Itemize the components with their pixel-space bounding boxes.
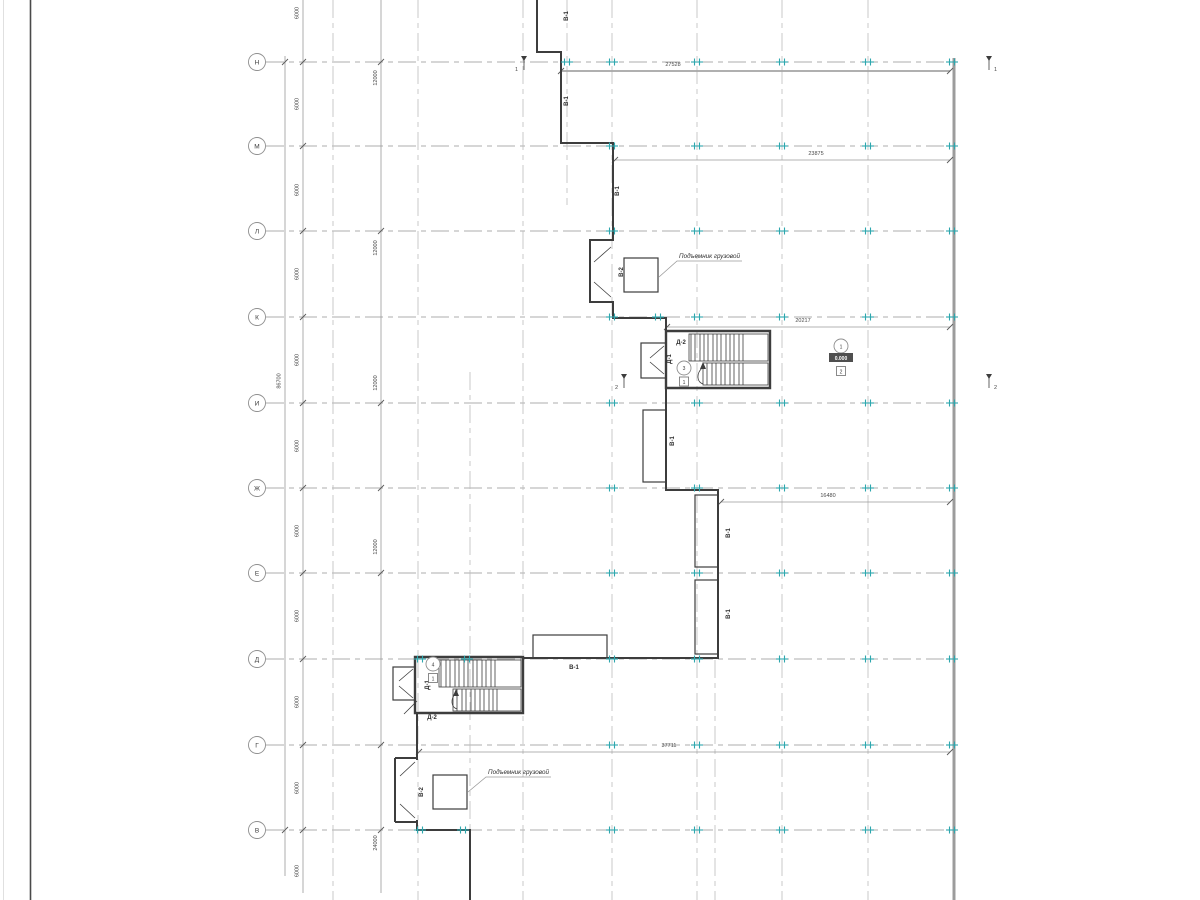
axis-row-label: В <box>255 828 259 835</box>
axis-row-I: И <box>249 395 266 412</box>
axis-row-E: Е <box>249 565 266 582</box>
dim-bay: 6000 <box>295 98 301 110</box>
hoist-label: Подъемник грузовой <box>679 252 740 260</box>
axis-row-G: Г <box>249 737 266 754</box>
axis-row-label: К <box>255 315 259 322</box>
window-label: В-1 <box>564 96 570 106</box>
stair-number: 3 <box>683 366 686 372</box>
axis-row-Zh: Ж <box>249 480 266 497</box>
section-number: 1 <box>994 67 997 73</box>
dim-bay: 6000 <box>295 696 301 708</box>
site-elevation-marker: 1 0.000 2 <box>829 339 853 376</box>
stairwell-bottom-treads <box>439 660 521 711</box>
horizontal-dimensions: 27528 23875 20217 16480 37711 <box>416 62 953 755</box>
section-mark-1-right: 1 <box>986 56 997 73</box>
door1-label: Д-1 <box>667 354 673 364</box>
grid-row-lines <box>266 62 950 830</box>
dim-20217: 20217 <box>795 318 810 324</box>
bottom-stair-marker: 4 1 <box>426 657 440 683</box>
dim-27528: 27528 <box>665 62 680 68</box>
wall-niche <box>393 667 415 700</box>
window-label: В-1 <box>564 11 570 21</box>
window-label: В-1 <box>569 665 579 671</box>
window-label: В-1 <box>726 528 732 538</box>
window-label: В-1 <box>670 436 676 446</box>
room-bump <box>533 635 607 658</box>
axis-row-N: Н <box>249 54 266 71</box>
dim-16480: 16480 <box>820 493 835 499</box>
opening-labels: В-1 В-1 В-1 В-1 В-1 В-1 В-1 В-2 В-2 Д-1 … <box>419 11 732 797</box>
axis-row-label: Д <box>255 657 260 664</box>
section-number: 2 <box>615 385 618 391</box>
axis-row-label: И <box>255 401 260 408</box>
dim-23875: 23875 <box>808 151 823 157</box>
dim-quad-bay: 24000 <box>373 835 379 850</box>
axis-row-V: В <box>249 822 266 839</box>
grid-ticks <box>414 59 958 834</box>
sheet-frame <box>4 0 31 900</box>
axis-row-label: Ж <box>254 486 260 493</box>
stair-number: 4 <box>432 663 435 669</box>
marker-type: 2 <box>840 370 843 376</box>
axis-row-K: К <box>249 309 266 326</box>
stair-type: 1 <box>683 380 686 386</box>
dim-overall: 86700 <box>277 373 283 388</box>
dim-bay: 6000 <box>295 865 301 877</box>
door2-label: Д-2 <box>676 340 686 346</box>
wall-niche <box>695 495 718 567</box>
vertical-dimension-chains: 86700 6000 6000 6000 6000 6000 6000 6000… <box>277 0 385 893</box>
dim-double-bay: 12000 <box>373 240 379 255</box>
floor-plan-canvas: 86700 6000 6000 6000 6000 6000 6000 6000… <box>0 0 1200 900</box>
axis-bubbles: Н М Л К И Ж Е Д Г В <box>249 54 266 839</box>
section-number: 1 <box>515 67 518 73</box>
building-walls <box>393 0 770 900</box>
elevation-value: 0.000 <box>835 356 848 362</box>
axis-row-label: Г <box>255 743 259 750</box>
dim-double-bay: 12000 <box>373 375 379 390</box>
section-mark-2-left: 2 <box>615 374 627 391</box>
dim-bay: 6000 <box>295 354 301 366</box>
dim-double-bay: 12000 <box>373 539 379 554</box>
hoist-door-label: В-2 <box>619 267 625 277</box>
dim-bay: 6000 <box>295 184 301 196</box>
grid-column-lines <box>333 0 868 900</box>
axis-row-label: М <box>254 144 259 151</box>
dim-bay: 6000 <box>295 440 301 452</box>
drawing-sheet: 86700 6000 6000 6000 6000 6000 6000 6000… <box>0 0 1200 900</box>
window-label: В-1 <box>726 609 732 619</box>
axis-row-label: Е <box>255 571 260 578</box>
mid-stair-marker: 3 1 <box>677 361 691 386</box>
hoist-label: Подъемник грузовой <box>488 768 549 776</box>
section-markers: 1 1 2 2 <box>515 56 997 391</box>
door2-label: Д-2 <box>427 715 437 721</box>
dim-bay: 6000 <box>295 782 301 794</box>
dim-bay: 6000 <box>295 525 301 537</box>
hoist-door-label: В-2 <box>419 787 425 797</box>
freight-hoist-top: Подъемник грузовой <box>624 252 742 292</box>
dim-bay: 6000 <box>295 7 301 19</box>
window-label: В-1 <box>615 186 621 196</box>
stair-type: 1 <box>432 677 435 683</box>
axis-row-D: Д <box>249 651 266 668</box>
axis-row-L: Л <box>249 223 266 240</box>
stair-markers: 3 1 1 0.000 2 4 1 <box>426 339 853 683</box>
dim-bay: 6000 <box>295 610 301 622</box>
axis-row-M: М <box>249 138 266 155</box>
dim-double-bay: 12000 <box>373 70 379 85</box>
wall-niche <box>695 580 718 654</box>
marker-number: 1 <box>840 345 843 351</box>
wall-niche <box>643 410 666 482</box>
axis-row-label: Н <box>255 60 260 67</box>
dim-37711: 37711 <box>662 743 677 749</box>
door-leaves <box>399 247 664 818</box>
axis-row-label: Л <box>255 229 259 236</box>
dim-bay: 6000 <box>295 268 301 280</box>
section-mark-1-left: 1 <box>515 56 527 73</box>
section-mark-2-right: 2 <box>986 374 997 391</box>
freight-hoist-bottom: Подъемник грузовой <box>433 768 551 809</box>
stairwell-mid-treads <box>689 334 768 385</box>
section-number: 2 <box>994 385 997 391</box>
